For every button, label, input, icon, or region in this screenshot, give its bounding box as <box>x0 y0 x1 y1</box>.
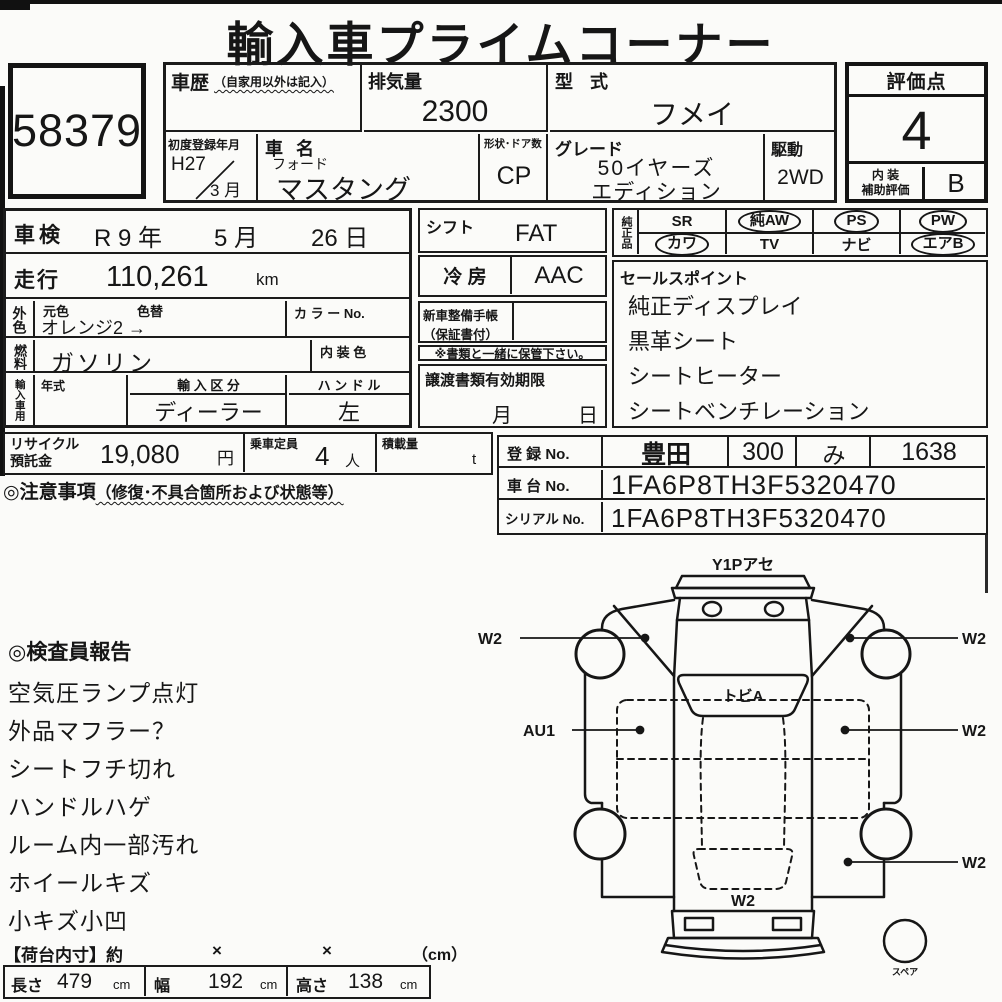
diagram-label-trunk: W2 <box>731 893 755 910</box>
interior-score-label: 内 装 補助評価 <box>849 167 925 199</box>
reg-class: 300 <box>731 437 797 468</box>
handle-cell: ハ ン ド ル 左 <box>289 375 409 425</box>
reg-kana: み <box>799 437 871 468</box>
fuel-value: ガソリン <box>51 344 155 378</box>
auction-sheet: 輸入車プライムコーナー 58379 車歴 （自家用以外は記入） 排気量 2300… <box>0 0 1002 1002</box>
cowl <box>677 598 809 620</box>
capacity-unit: 人 <box>345 450 360 471</box>
ext-color-label: 外色 <box>6 301 35 338</box>
car-name-value: マスタング <box>276 168 411 207</box>
equipment-label: 純正品 <box>614 210 639 254</box>
fuel-row: 燃料 ガソリン 内 装 色 <box>6 340 409 373</box>
equipment-item-ps: PS <box>812 210 899 232</box>
drive-value: 2WD <box>767 166 834 190</box>
leader-dot-right-door <box>842 727 849 734</box>
transfer-docs-box: 譲渡書類有効期限 月 日 <box>418 364 607 428</box>
model-code-value: フメイ <box>550 93 834 133</box>
handle-value: 左 <box>289 397 409 425</box>
cargo-width-cell: 幅 192 cm <box>148 967 288 996</box>
inspector-report-title: ◎検査員報告 <box>8 636 438 666</box>
drive-label: 駆動 <box>771 136 803 160</box>
reg-no-label: 登 録 No. <box>499 437 603 468</box>
ac-box: 冷 房 AAC <box>418 255 607 297</box>
equipment-item-aw: 純AW <box>725 210 812 232</box>
report-item: ルーム内一部汚れ <box>8 826 438 864</box>
tail-light-right <box>773 918 801 930</box>
serial-row: シリアル No. 1FA6P8TH3F5320470 <box>499 502 985 532</box>
service-book-line1: 新車整備手帳 <box>423 305 512 324</box>
sales-points-box: セールスポイント 純正ディスプレイ 黒革シート シートヒーター シートベンチレー… <box>612 260 988 428</box>
load-unit: t <box>472 451 476 468</box>
reg-number: 1638 <box>873 437 985 468</box>
import-label: 輸入車用 <box>6 375 35 425</box>
leader-dot-left-door <box>637 727 644 734</box>
interior-color-cell: 内 装 色 <box>310 340 409 373</box>
cargo-x1: × <box>212 941 222 961</box>
grade-line2: エディション <box>550 176 763 206</box>
spare-tire <box>884 920 926 962</box>
interior-label-2: 補助評価 <box>849 183 922 197</box>
fuel-label: 燃料 <box>6 340 35 373</box>
sales-points-label: セールスポイント <box>620 265 986 289</box>
chassis-no-value: 1FA6P8TH3F5320470 <box>611 470 897 501</box>
transfer-docs-day: 日 <box>578 399 598 428</box>
diagram-label-right-door: W2 <box>962 723 986 740</box>
import-row: 輸入車用 年式 輸 入 区 分 ディーラー ハ ン ド ル 左 <box>6 375 409 425</box>
first-registration-month: 3 月 <box>210 176 241 201</box>
rear-window-dashed <box>694 849 793 889</box>
front-bumper-top <box>676 576 810 588</box>
cabin-left-dashed <box>701 718 703 848</box>
score-value: 4 <box>849 100 984 164</box>
shaken-day: 26 日 <box>311 218 368 253</box>
reg-area: 豊田 <box>605 437 729 468</box>
equipment-value-airbag: エアB <box>911 233 976 256</box>
shift-box: シフト FAT <box>418 208 607 253</box>
sales-point-item: シートヒーター <box>628 359 986 394</box>
report-item: シートフチ切れ <box>8 750 438 788</box>
equipment-value-aw: 純AW <box>738 210 801 233</box>
washer-left <box>703 602 721 616</box>
cargo-height-label: 高さ <box>296 972 328 996</box>
ac-value: AAC <box>514 257 604 294</box>
equipment-value-leather: カワ <box>655 233 709 256</box>
interior-dashed <box>617 700 869 889</box>
cargo-width-value: 192 <box>208 970 243 994</box>
equipment-item-navi: ナビ <box>812 232 899 254</box>
capacity-cell: 乗車定員 4 人 <box>247 434 377 472</box>
displacement-value: 2300 <box>364 95 546 129</box>
washer-right <box>765 602 783 616</box>
body-right-side <box>809 620 812 911</box>
transfer-docs-label: 譲渡書類有効期限 <box>425 369 545 390</box>
diagram-label-front-right-wheel: W2 <box>962 631 986 648</box>
car-name-cell: 車 名 フォード マスタング <box>260 134 480 200</box>
caution-note: （修復･不具合箇所および状態等） <box>96 485 344 502</box>
inspector-report: ◎検査員報告 空気圧ランプ点灯 外品マフラー？ シートフチ切れ ハンドルハゲ ル… <box>8 636 438 940</box>
color-no-label: カ ラ ー No. <box>294 303 365 322</box>
model-code-cell: 型 式 フメイ <box>550 65 834 132</box>
cargo-width-label: 幅 <box>154 972 170 996</box>
report-item: 外品マフラー？ <box>8 712 438 750</box>
serial-no-value: 1FA6P8TH3F5320470 <box>611 503 887 534</box>
grade-cell: グレード 50イヤーズ エディション <box>550 134 765 200</box>
import-class-value: ディーラー <box>130 397 287 425</box>
ext-color-value-cell: 元色 色替 オレンジ2 → <box>37 301 287 338</box>
report-item: 小キズ小凹 <box>8 902 438 940</box>
equipment-item-tv: TV <box>725 232 812 254</box>
cargo-header-label: 【荷台内寸】約 <box>4 941 123 966</box>
shaken-label: 車検 <box>14 219 64 249</box>
diagram-label-spare: スペア <box>892 967 918 977</box>
model-year-cell: 年式 <box>37 375 128 425</box>
recycle-cell: リサイクル 預託金 19,080 円 <box>5 434 245 472</box>
equipment-item-airbag: エアB <box>899 232 985 254</box>
load-cell: 積載量 t <box>379 434 490 472</box>
cabin-right-dashed <box>783 718 785 848</box>
history-note: （自家用以外は記入） <box>214 73 334 90</box>
service-book-note: ※書類と一緒に保管下さい。 <box>418 345 607 361</box>
cargo-height-cell: 高さ 138 cm <box>290 967 428 996</box>
mileage-value: 110,261 <box>106 261 209 294</box>
leader-dot-rear-right <box>845 859 852 866</box>
shift-value: FAT <box>515 220 557 248</box>
equipment-item-sr: SR <box>639 210 725 232</box>
service-book-line2: （保証書付） <box>423 324 512 343</box>
ext-color-value: オレンジ2 → <box>41 314 146 340</box>
equipment-value-sr: SR <box>672 213 693 230</box>
recycle-row: リサイクル 預託金 19,080 円 乗車定員 4 人 積載量 t <box>3 432 493 475</box>
leader-dot-front-left <box>642 635 649 642</box>
load-label: 積載量 <box>382 435 418 452</box>
cargo-height-value: 138 <box>348 970 383 994</box>
sales-point-item: 純正ディスプレイ <box>628 289 986 324</box>
mileage-unit: km <box>256 270 279 290</box>
leader-dot-front-right <box>847 635 854 642</box>
equipment-value-ps: PS <box>834 210 878 233</box>
displacement-label: 排気量 <box>368 68 422 94</box>
shift-label: シフト <box>426 214 474 238</box>
equipment-value-navi: ナビ <box>841 234 871 255</box>
equipment-value-pw: PW <box>919 210 967 233</box>
ext-color-row: 外色 元色 色替 オレンジ2 → カ ラ ー No. <box>6 301 409 338</box>
cargo-length-unit: cm <box>113 977 130 992</box>
cargo-header: 【荷台内寸】約 × × （cm） <box>4 941 484 963</box>
shaken-month: 5 月 <box>214 218 258 253</box>
drive-cell: 駆動 2WD <box>767 134 834 200</box>
cargo-length-cell: 長さ 479 cm <box>5 967 146 996</box>
equipment-box: 純正品 SR 純AW PS PW カワ TV ナビ エアB <box>612 208 988 257</box>
history-cell: 車歴 （自家用以外は記入） <box>166 65 362 132</box>
service-book-box: 新車整備手帳 （保証書付） <box>418 301 607 343</box>
shaken-era: R 9 年 <box>94 218 162 253</box>
interior-label-1: 内 装 <box>849 168 922 183</box>
capacity-label: 乗車定員 <box>250 435 298 452</box>
cargo-x2: × <box>322 941 332 961</box>
rear-bumper <box>672 911 814 938</box>
right-window-line <box>812 606 872 676</box>
diagram-label-windshield: トビA <box>723 688 764 705</box>
car-diagram-svg: Y1Pアセ トビA W2 W2 AU1 W2 W2 W2 スペア <box>450 548 1002 1002</box>
equipment-item-pw: PW <box>899 210 985 232</box>
wheel-rear-right <box>861 809 911 859</box>
registration-table: 登 録 No. 豊田 300 み 1638 車 台 No. 1FA6P8TH3F… <box>497 435 988 535</box>
cargo-length-value: 479 <box>57 970 92 994</box>
equipment-item-leather: カワ <box>639 232 725 254</box>
recycle-value: 19,080 <box>100 439 180 470</box>
first-registration-cell: 初度登録年月 H27 ／ 3 月 <box>166 134 258 200</box>
diagram-label-rear-right-wheel: W2 <box>962 855 986 872</box>
sales-point-item: シートベンチレーション <box>628 394 986 429</box>
service-book-value-cell <box>516 303 604 340</box>
capacity-value: 4 <box>315 441 329 472</box>
report-item: 空気圧ランプ点灯 <box>8 674 438 712</box>
vehicle-info-table: 車歴 （自家用以外は記入） 排気量 2300 型 式 フメイ 初度登録年月 H2… <box>163 62 837 203</box>
wheel-rear-left <box>575 809 625 859</box>
cargo-table: 長さ 479 cm 幅 192 cm 高さ 138 cm <box>3 965 431 999</box>
caution-label: ◎注意事項 <box>3 482 96 503</box>
history-label: 車歴 <box>171 68 209 95</box>
body-doors-value: CP <box>482 162 546 191</box>
lot-number: 58379 <box>8 63 146 199</box>
score-box: 評価点 4 内 装 補助評価 B <box>845 62 988 203</box>
body-doors-label: 形状･ドア数 <box>484 136 542 151</box>
service-book-label-cell: 新車整備手帳 （保証書付） <box>420 303 514 340</box>
diagram-label-front-bumper: Y1Pアセ <box>712 557 774 574</box>
serial-no-label: シリアル No. <box>499 502 603 532</box>
registration-row: 登 録 No. 豊田 300 み 1638 <box>499 437 985 468</box>
front-bumper-band <box>672 588 814 598</box>
equipment-value-tv: TV <box>760 236 779 253</box>
cargo-length-label: 長さ <box>11 972 43 996</box>
caution-line: ◎注意事項（修復･不具合箇所および状態等） <box>3 477 483 504</box>
import-class-cell: 輸 入 区 分 ディーラー <box>130 375 287 425</box>
report-item: ホイールキズ <box>8 864 438 902</box>
report-item: ハンドルハゲ <box>8 788 438 826</box>
body-doors-cell: 形状･ドア数 CP <box>482 134 548 200</box>
car-damage-diagram: Y1Pアセ トビA W2 W2 AU1 W2 W2 W2 スペア <box>450 548 1002 1002</box>
displacement-cell: 排気量 2300 <box>364 65 548 132</box>
tail-light-left <box>685 918 713 930</box>
transfer-docs-month: 月 <box>492 399 512 428</box>
color-no-cell: カ ラ ー No. <box>289 301 409 338</box>
import-class-label: 輸 入 区 分 <box>130 375 287 395</box>
diagram-label-front-left-wheel: W2 <box>478 631 502 648</box>
model-code-label: 型 式 <box>555 68 614 94</box>
diagram-label-left-door: AU1 <box>523 723 555 740</box>
chassis-row: 車 台 No. 1FA6P8TH3F5320470 <box>499 470 985 500</box>
left-info-table: 車検 R 9 年 5 月 26 日 走行 110,261 km 外色 元色 色替… <box>3 208 412 428</box>
recycle-unit: 円 <box>217 444 234 469</box>
chassis-no-label: 車 台 No. <box>499 470 603 500</box>
ac-label: 冷 房 <box>420 257 512 294</box>
interior-score-value: B <box>928 167 984 199</box>
shaken-row: 車検 R 9 年 5 月 26 日 <box>6 211 409 254</box>
cargo-height-unit: cm <box>400 977 417 992</box>
handle-label: ハ ン ド ル <box>289 375 409 395</box>
model-year-label: 年式 <box>41 377 65 394</box>
mileage-label: 走行 <box>14 264 60 294</box>
rear-skirt-line <box>665 945 821 951</box>
score-label: 評価点 <box>849 66 984 97</box>
cargo-width-unit: cm <box>260 977 277 992</box>
interior-color-label: 内 装 色 <box>320 342 366 361</box>
scan-top-edge <box>0 0 1002 4</box>
sales-point-item: 黒革シート <box>628 324 986 359</box>
mileage-row: 走行 110,261 km <box>6 256 409 299</box>
body-left-side <box>674 620 677 911</box>
